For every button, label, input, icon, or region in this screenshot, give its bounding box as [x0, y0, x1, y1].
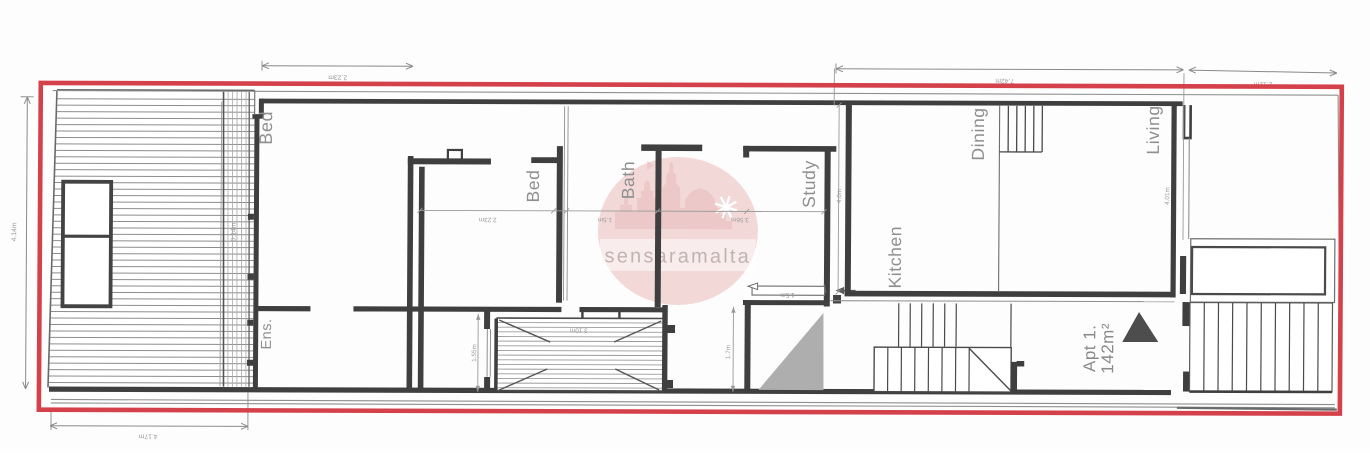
- svg-text:Apt 1.: Apt 1.: [1080, 325, 1099, 372]
- svg-text:4.01m: 4.01m: [1164, 187, 1171, 205]
- svg-text:2.23m: 2.23m: [328, 73, 347, 80]
- svg-text:7.42m: 7.42m: [995, 77, 1014, 84]
- svg-text:Kitchen: Kitchen: [885, 226, 905, 289]
- svg-text:1.5m: 1.5m: [598, 216, 612, 223]
- svg-text:4.0m: 4.0m: [836, 189, 843, 203]
- svg-text:3.10m: 3.10m: [570, 326, 588, 333]
- svg-text:Bed: Bed: [256, 111, 276, 145]
- svg-text:1.55m: 1.55m: [471, 344, 478, 362]
- svg-text:4.17m: 4.17m: [138, 432, 157, 439]
- svg-text:0.14m: 0.14m: [231, 222, 238, 241]
- svg-text:2.23m: 2.23m: [479, 216, 497, 223]
- svg-text:1.7m: 1.7m: [725, 345, 732, 359]
- svg-text:Study: Study: [799, 160, 819, 208]
- svg-text:Living: Living: [1143, 105, 1163, 154]
- svg-text:Dining: Dining: [968, 107, 988, 160]
- svg-text:4.14m: 4.14m: [11, 222, 18, 241]
- svg-text:142m²: 142m²: [1098, 323, 1117, 374]
- svg-text:Ens.: Ens.: [259, 318, 275, 349]
- svg-text:Bath: Bath: [618, 161, 638, 199]
- svg-text:3.56m: 3.56m: [731, 216, 749, 223]
- svg-text:1.5m: 1.5m: [780, 291, 794, 298]
- svg-text:sensaramalta: sensaramalta: [604, 245, 751, 267]
- svg-text:Bed: Bed: [523, 169, 543, 202]
